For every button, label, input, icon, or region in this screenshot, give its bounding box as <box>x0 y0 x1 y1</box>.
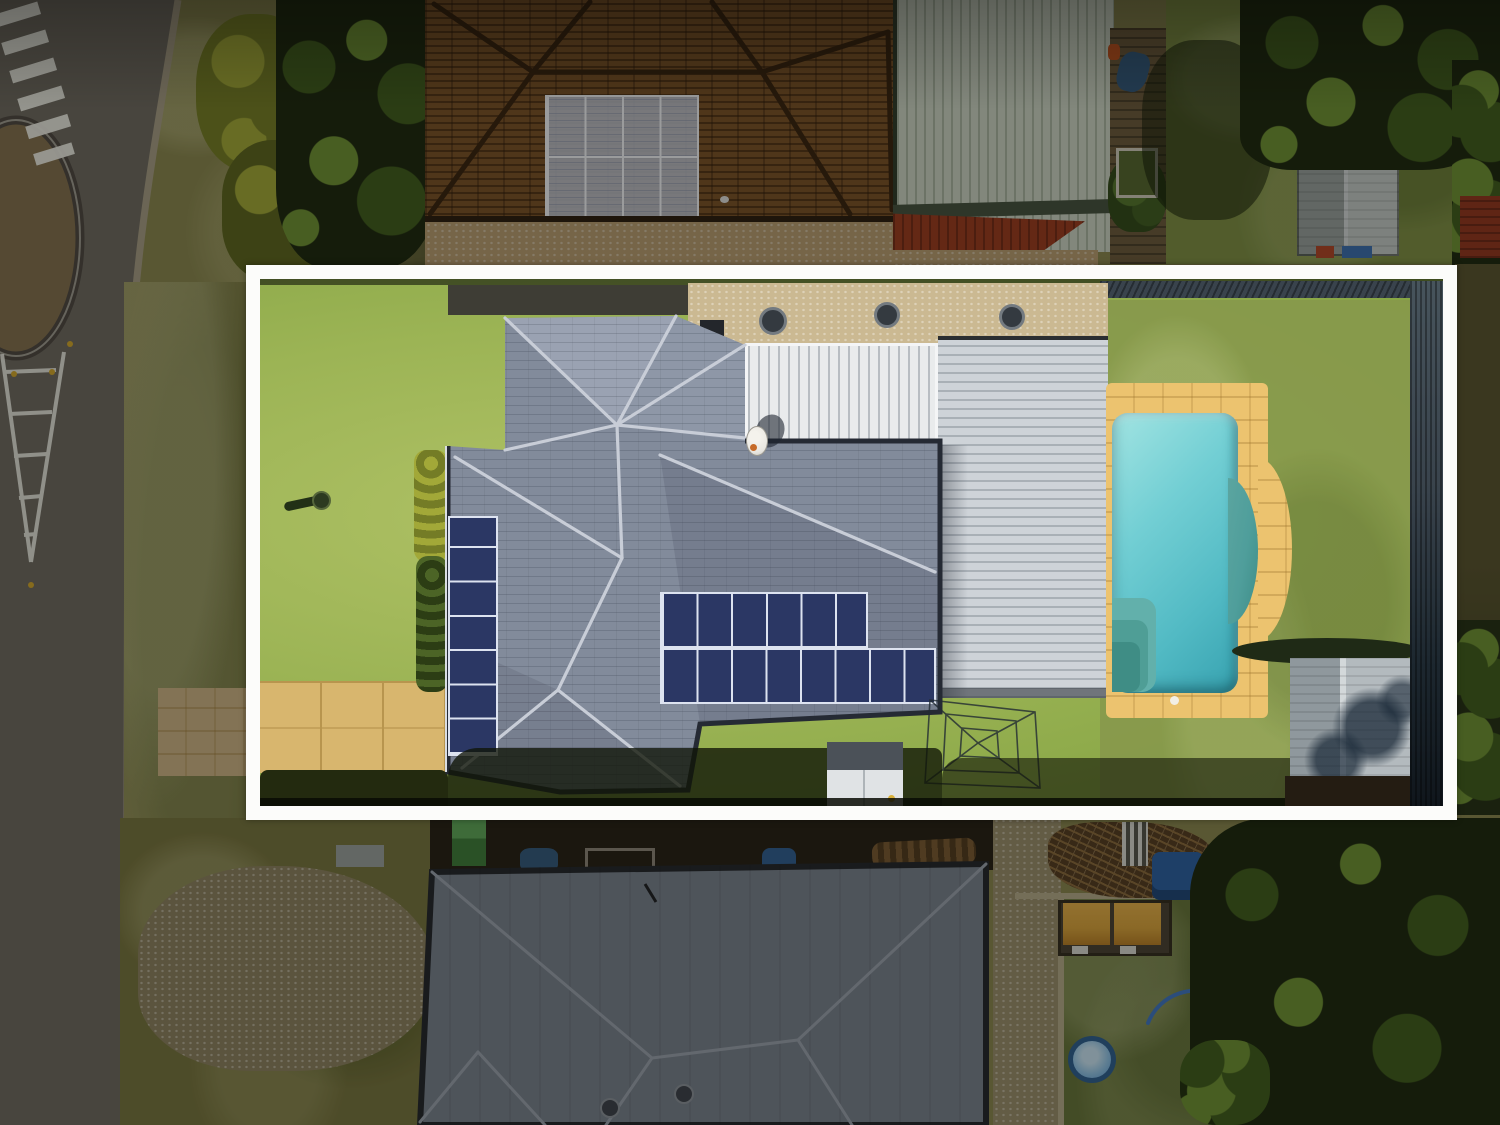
red-shed-far-right <box>1460 196 1500 258</box>
tree-shadow-mass-top <box>276 0 441 268</box>
tree-clump-left-edge <box>1180 1040 1270 1125</box>
blue-items-by-shed <box>1342 246 1372 258</box>
play-bench-right <box>1120 946 1136 954</box>
play-canopy-left <box>1063 903 1110 945</box>
bottom-roof-plane <box>420 864 986 1125</box>
play-canopy-right <box>1114 903 1161 945</box>
gravel-under-green-building <box>893 250 1098 266</box>
concrete-pad <box>336 845 384 867</box>
kiddie-pool <box>1068 1036 1116 1083</box>
aerial-photo-scene <box>0 0 1500 1125</box>
brown-roof-solar-array <box>545 95 699 221</box>
driveway-apron <box>158 688 248 776</box>
bottom-house-roof <box>400 858 1000 1125</box>
property-boundary-outline <box>246 265 1457 820</box>
orange-object <box>1108 44 1120 60</box>
roof-vent-white <box>720 196 729 203</box>
tree-over-right-strip <box>1452 620 1500 815</box>
gravel-bed-top <box>425 222 903 266</box>
striped-deck-chair <box>1122 822 1148 866</box>
red-item-by-shed <box>1316 246 1334 258</box>
play-bench-left <box>1072 946 1088 954</box>
